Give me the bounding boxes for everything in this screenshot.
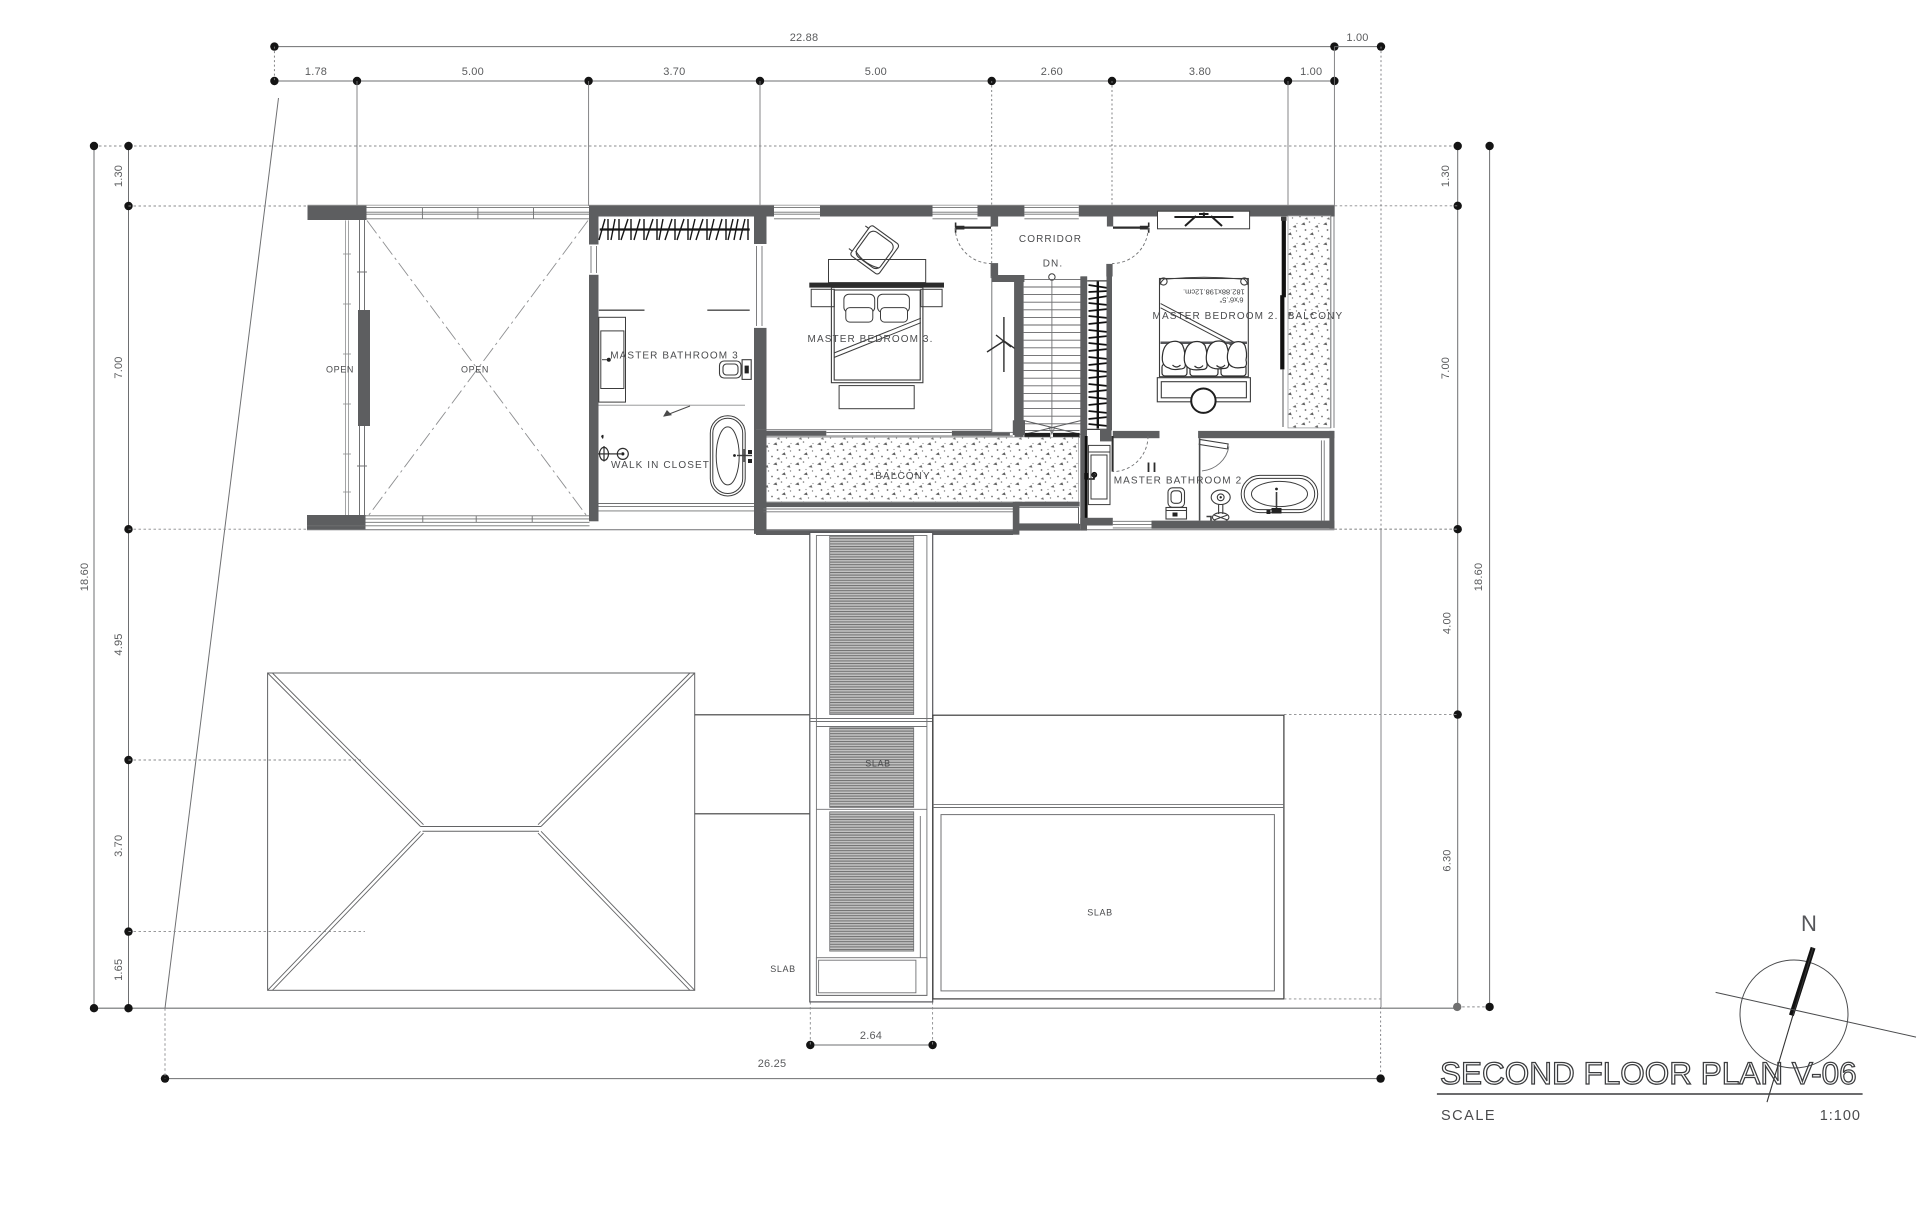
svg-text:26.25: 26.25 — [758, 1058, 787, 1070]
svg-text:SCALE: SCALE — [1441, 1108, 1496, 1124]
svg-text:MASTER BATHROOM 2: MASTER BATHROOM 2 — [1114, 476, 1243, 487]
svg-text:WALK IN CLOSET: WALK IN CLOSET — [611, 460, 710, 471]
svg-text:3.80: 3.80 — [1189, 66, 1211, 78]
svg-text:3.70: 3.70 — [663, 66, 685, 78]
svg-text:22.88: 22.88 — [790, 32, 819, 44]
svg-text:SLAB: SLAB — [770, 964, 795, 974]
svg-text:5.00: 5.00 — [462, 66, 484, 78]
svg-text:2.60: 2.60 — [1041, 66, 1063, 78]
svg-text:BALCONY: BALCONY — [875, 471, 931, 482]
svg-text:7.00: 7.00 — [1440, 357, 1452, 379]
svg-text:18.60: 18.60 — [79, 563, 91, 592]
svg-text:1.65: 1.65 — [113, 959, 125, 981]
svg-text:3.70: 3.70 — [113, 835, 125, 857]
svg-text:182.88x198.12cm.: 182.88x198.12cm. — [1183, 287, 1245, 296]
svg-text:1.00: 1.00 — [1300, 66, 1322, 78]
svg-text:SECOND FLOOR PLAN V-06: SECOND FLOOR PLAN V-06 — [1440, 1055, 1857, 1091]
svg-text:1.30: 1.30 — [1440, 165, 1452, 187]
svg-text:MASTER BEDROOM 2.: MASTER BEDROOM 2. — [1153, 311, 1279, 322]
svg-text:N: N — [1801, 911, 1817, 936]
svg-text:BALCONY: BALCONY — [1288, 311, 1344, 322]
svg-text:4.00: 4.00 — [1442, 612, 1454, 634]
svg-text:SLAB: SLAB — [865, 759, 890, 769]
svg-text:2.64: 2.64 — [860, 1030, 882, 1042]
svg-text:5.00: 5.00 — [865, 66, 887, 78]
svg-text:OPEN: OPEN — [326, 365, 354, 375]
svg-text:1:100: 1:100 — [1820, 1108, 1861, 1124]
svg-text:4.95: 4.95 — [113, 633, 125, 655]
svg-text:1.30: 1.30 — [113, 165, 125, 187]
svg-text:DN.: DN. — [1043, 259, 1064, 270]
svg-text:SLAB: SLAB — [1087, 908, 1112, 918]
svg-text:1.78: 1.78 — [305, 66, 327, 78]
svg-text:OPEN: OPEN — [461, 365, 489, 375]
svg-text:7.00: 7.00 — [113, 356, 125, 378]
svg-text:CORRIDOR: CORRIDOR — [1019, 234, 1082, 245]
svg-text:18.60: 18.60 — [1473, 563, 1485, 592]
svg-text:6.30: 6.30 — [1442, 849, 1454, 871]
svg-text:MASTER BEDROOM 3.: MASTER BEDROOM 3. — [808, 334, 934, 345]
svg-text:MASTER BATHROOM 3: MASTER BATHROOM 3 — [610, 351, 739, 362]
svg-text:6'x6'.5": 6'x6'.5" — [1219, 295, 1243, 304]
svg-text:1.00: 1.00 — [1346, 32, 1368, 44]
